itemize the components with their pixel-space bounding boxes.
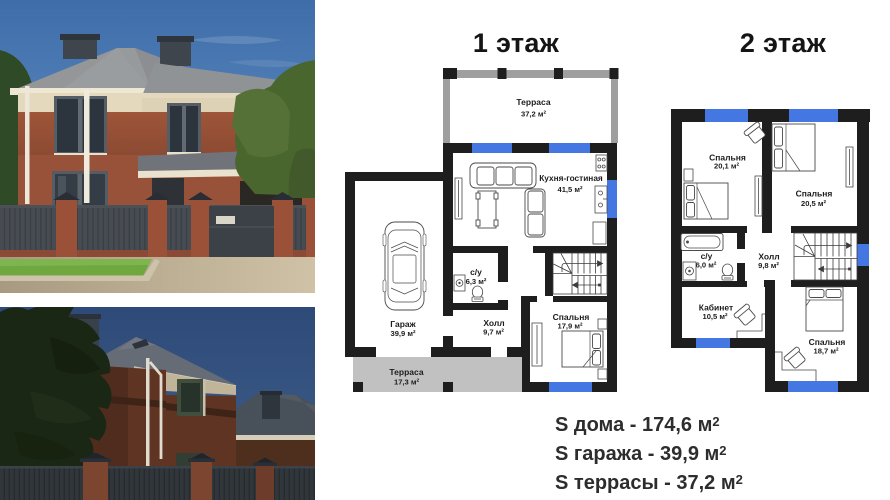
svg-text:6,3 м²: 6,3 м² [466, 277, 487, 286]
svg-text:18,7 м²: 18,7 м² [813, 347, 839, 356]
svg-text:17,3 м²: 17,3 м² [394, 378, 420, 387]
svg-text:9,8 м²: 9,8 м² [758, 261, 779, 270]
svg-text:Терраса: Терраса [389, 367, 423, 377]
svg-text:9,7 м²: 9,7 м² [483, 328, 504, 337]
svg-text:Кухня-гостиная: Кухня-гостиная [539, 173, 603, 183]
svg-text:10,5 м²: 10,5 м² [702, 312, 728, 321]
svg-text:Терраса: Терраса [516, 97, 550, 107]
svg-text:Спальня: Спальня [796, 189, 833, 199]
svg-text:Холл: Холл [483, 318, 504, 328]
svg-text:с/у: с/у [701, 251, 713, 261]
svg-text:17,9 м²: 17,9 м² [557, 322, 583, 331]
svg-text:Кабинет: Кабинет [699, 303, 733, 313]
svg-text:Гараж: Гараж [390, 319, 416, 329]
svg-text:37,2 м²: 37,2 м² [521, 110, 547, 119]
svg-text:Холл: Холл [758, 252, 779, 262]
svg-text:Спальня: Спальня [553, 312, 590, 322]
svg-text:Спальня: Спальня [809, 337, 846, 347]
svg-text:39,9 м²: 39,9 м² [390, 329, 416, 338]
svg-text:20,5 м²: 20,5 м² [801, 199, 827, 208]
svg-text:6,0 м²: 6,0 м² [696, 261, 717, 270]
svg-text:20,1 м²: 20,1 м² [714, 162, 740, 171]
svg-text:41,5 м²: 41,5 м² [557, 185, 583, 194]
svg-text:с/у: с/у [470, 267, 482, 277]
